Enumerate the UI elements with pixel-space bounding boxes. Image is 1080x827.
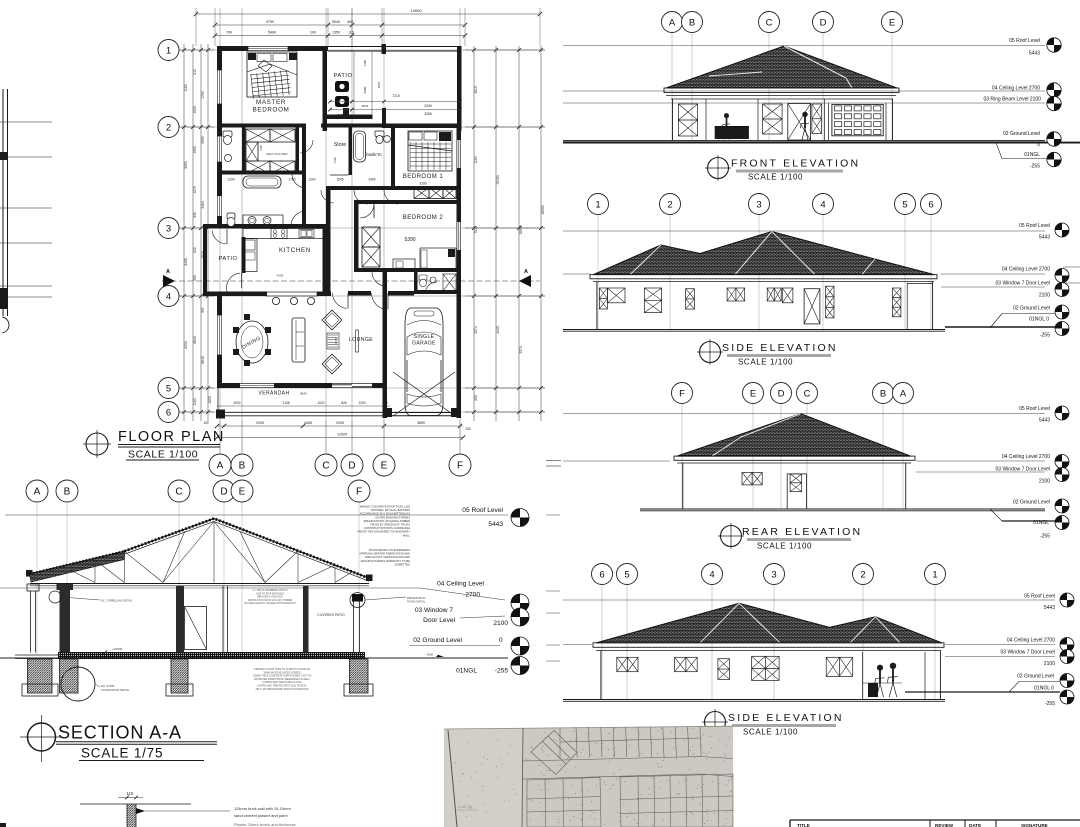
svg-text:MANUFACTURER'S WARRANTY TO BE: MANUFACTURER'S WARRANTY TO BE bbox=[361, 559, 411, 563]
svg-text:TITLE: TITLE bbox=[797, 823, 810, 827]
svg-text:05 Roof Level: 05 Roof Level bbox=[1019, 406, 1050, 412]
svg-text:110: 110 bbox=[348, 31, 354, 35]
svg-text:8434: 8434 bbox=[184, 341, 188, 349]
svg-text:05 Roof Level: 05 Roof Level bbox=[1024, 594, 1055, 600]
svg-text:3280: 3280 bbox=[424, 112, 432, 116]
svg-text:-255: -255 bbox=[1030, 164, 1040, 170]
svg-text:sand cement plaster and paint: sand cement plaster and paint bbox=[234, 813, 288, 818]
svg-text:01NGL 0: 01NGL 0 bbox=[1029, 317, 1049, 323]
svg-text:5003: 5003 bbox=[201, 136, 205, 144]
svg-text:03 Ring Beam Level 2100: 03 Ring Beam Level 2100 bbox=[983, 97, 1041, 103]
svg-text:8405: 8405 bbox=[184, 258, 188, 266]
svg-text:6640: 6640 bbox=[193, 336, 197, 344]
svg-text:1200: 1200 bbox=[358, 401, 365, 405]
svg-text:04 Ceiling Level 2700: 04 Ceiling Level 2700 bbox=[1002, 454, 1050, 460]
svg-text:05 Roof Level: 05 Roof Level bbox=[1019, 223, 1050, 229]
svg-text:02 Ground Level: 02 Ground Level bbox=[1017, 674, 1054, 680]
svg-text:ACCORDANCE 38 X 38 SA BATTENS: ACCORDANCE 38 X 38 SA BATTENS AS bbox=[360, 512, 411, 516]
svg-text:DATE: DATE bbox=[969, 823, 981, 827]
svg-text:115mm brick wall with 15-19mm: 115mm brick wall with 15-19mm bbox=[234, 806, 291, 811]
svg-text:E: E bbox=[750, 388, 756, 399]
svg-text:513: 513 bbox=[193, 69, 197, 75]
svg-text:03 Window 7 Door Level: 03 Window 7 Door Level bbox=[996, 467, 1050, 473]
svg-text:PATIO: PATIO bbox=[333, 73, 352, 79]
svg-text:6: 6 bbox=[599, 569, 604, 580]
svg-text:01NGL: 01NGL bbox=[456, 668, 477, 675]
svg-text:FRONT ELEVATION: FRONT ELEVATION bbox=[731, 158, 860, 170]
svg-text:FOUNDATION DETAIL: FOUNDATION DETAIL bbox=[101, 688, 130, 692]
svg-text:APPROVAL BEFORE FABRICATION AN: APPROVAL BEFORE FABRICATION AND bbox=[359, 552, 410, 556]
svg-text:AS PER MANUFACTURERS: AS PER MANUFACTURERS bbox=[375, 515, 410, 519]
svg-text:1760: 1760 bbox=[288, 178, 295, 182]
svg-text:1850: 1850 bbox=[208, 396, 212, 404]
svg-text:A: A bbox=[524, 269, 528, 275]
svg-text:04 Ceiling Level 2700: 04 Ceiling Level 2700 bbox=[992, 86, 1040, 92]
svg-text:05 Roof Level: 05 Roof Level bbox=[462, 507, 503, 514]
svg-text:1200: 1200 bbox=[227, 178, 234, 182]
svg-text:SCALE 1/100: SCALE 1/100 bbox=[757, 542, 812, 551]
svg-text:3890: 3890 bbox=[417, 421, 425, 425]
svg-text:BEDROOM 2: BEDROOM 2 bbox=[403, 215, 444, 221]
svg-text:2000: 2000 bbox=[233, 401, 240, 405]
svg-text:B: B bbox=[689, 17, 695, 28]
svg-text:12925: 12925 bbox=[337, 433, 347, 437]
svg-text:5443: 5443 bbox=[1039, 235, 1050, 241]
svg-text:COVERED PATIO: COVERED PATIO bbox=[317, 613, 345, 617]
svg-text:F: F bbox=[679, 388, 685, 399]
svg-text:1200: 1200 bbox=[308, 178, 315, 182]
svg-text:5490: 5490 bbox=[268, 31, 276, 35]
svg-text:1200: 1200 bbox=[259, 145, 263, 151]
svg-text:01NGL: 01NGL bbox=[1024, 152, 1040, 158]
svg-text:A: A bbox=[900, 388, 907, 399]
svg-text:5443: 5443 bbox=[1029, 51, 1040, 57]
svg-text:2484: 2484 bbox=[201, 201, 205, 209]
svg-text:826: 826 bbox=[341, 401, 347, 405]
svg-text:150: 150 bbox=[203, 421, 209, 425]
svg-text:05 Roof Level: 05 Roof Level bbox=[1009, 38, 1040, 44]
svg-text:-255: -255 bbox=[1045, 701, 1055, 707]
svg-text:990: 990 bbox=[193, 275, 197, 281]
svg-text:TRUSS BY SPECIALIST. TRUSS: TRUSS BY SPECIALIST. TRUSS bbox=[370, 523, 410, 527]
svg-text:FINISHED, WITH ALL BATTENS: FINISHED, WITH ALL BATTENS bbox=[371, 508, 410, 512]
svg-text:13000: 13000 bbox=[410, 8, 422, 13]
svg-text:02 Ground Level: 02 Ground Level bbox=[1013, 500, 1050, 506]
svg-text:3280: 3280 bbox=[419, 182, 427, 186]
svg-text:1180: 1180 bbox=[363, 59, 367, 66]
svg-text:4200: 4200 bbox=[277, 274, 284, 278]
svg-text:3: 3 bbox=[756, 199, 761, 210]
svg-text:2100: 2100 bbox=[1039, 293, 1050, 299]
svg-text:5003: 5003 bbox=[184, 161, 188, 169]
svg-text:PATIO: PATIO bbox=[218, 256, 237, 262]
svg-text:2945: 2945 bbox=[336, 421, 344, 425]
svg-text:E: E bbox=[381, 461, 388, 472]
svg-text:938: 938 bbox=[193, 212, 197, 218]
svg-text:PROOF TIES ANCHORED TO MASONAR: PROOF TIES ANCHORED TO MASONARY bbox=[357, 530, 410, 534]
svg-text:C: C bbox=[804, 388, 811, 399]
svg-text:150: 150 bbox=[465, 427, 471, 431]
svg-text:5022: 5022 bbox=[362, 104, 369, 108]
svg-text:5443: 5443 bbox=[1044, 605, 1055, 611]
svg-text:Store: Store bbox=[334, 142, 347, 148]
svg-text:SIGNATURE: SIGNATURE bbox=[1021, 823, 1048, 827]
svg-text:E: E bbox=[239, 487, 246, 498]
svg-text:WALL: WALL bbox=[403, 533, 411, 537]
svg-text:3645: 3645 bbox=[334, 337, 338, 344]
svg-text:2: 2 bbox=[860, 569, 865, 580]
svg-text:5390: 5390 bbox=[404, 237, 415, 243]
svg-text:4: 4 bbox=[166, 291, 171, 302]
svg-text:04 Ceiling Level: 04 Ceiling Level bbox=[437, 581, 484, 588]
svg-text:+16000: +16000 bbox=[112, 647, 122, 651]
svg-text:1162: 1162 bbox=[184, 84, 188, 91]
svg-text:2700: 2700 bbox=[465, 592, 480, 599]
svg-text:Plaster 20mm levels and thickn: Plaster 20mm levels and thickness bbox=[234, 822, 296, 827]
svg-text:4465: 4465 bbox=[304, 421, 312, 425]
svg-text:04 Ceiling Level 2700: 04 Ceiling Level 2700 bbox=[1002, 267, 1050, 273]
svg-text:900: 900 bbox=[474, 395, 478, 401]
svg-text:SPECIFICATION. DIAGONAL TIMBER: SPECIFICATION. DIAGONAL TIMBER bbox=[363, 519, 410, 523]
svg-text:5: 5 bbox=[902, 199, 907, 210]
svg-text:HOUSED LENGTH. PACKED WITH MAR: HOUSED LENGTH. PACKED WITH MARGUITZ bbox=[244, 602, 296, 605]
svg-text:1: 1 bbox=[595, 199, 600, 210]
svg-text:WALK IN CLOSET: WALK IN CLOSET bbox=[266, 152, 288, 156]
svg-text:D: D bbox=[820, 17, 827, 28]
svg-text:4: 4 bbox=[820, 199, 825, 210]
svg-text:04 Ceiling Level 2700: 04 Ceiling Level 2700 bbox=[1007, 638, 1055, 644]
svg-text:-255: -255 bbox=[495, 668, 509, 675]
svg-text:5: 5 bbox=[166, 383, 171, 394]
svg-text:A: A bbox=[34, 487, 41, 498]
svg-text:FIXING DETAIL: FIXING DETAIL bbox=[407, 600, 426, 604]
svg-text:02 Ground Level: 02 Ground Level bbox=[1013, 306, 1050, 312]
svg-text:5900: 5900 bbox=[363, 86, 367, 93]
svg-text:1163: 1163 bbox=[474, 156, 478, 163]
svg-text:MASTER: MASTER bbox=[256, 99, 286, 106]
svg-text:03 Window 7 Door Level: 03 Window 7 Door Level bbox=[1001, 650, 1055, 656]
svg-text:5443: 5443 bbox=[488, 521, 503, 528]
svg-text:4510: 4510 bbox=[377, 81, 381, 88]
svg-text:SCALE 1/100: SCALE 1/100 bbox=[738, 358, 793, 367]
svg-text:5040: 5040 bbox=[332, 20, 340, 24]
svg-text:115: 115 bbox=[127, 791, 134, 796]
svg-text:1: 1 bbox=[166, 45, 171, 56]
svg-text:C-447 (3): C-447 (3) bbox=[458, 805, 471, 809]
svg-text:D: D bbox=[220, 487, 227, 498]
svg-text:BEDROOM 1: BEDROOM 1 bbox=[403, 174, 444, 180]
svg-text:C: C bbox=[766, 17, 773, 28]
svg-text:03 Window 7 Door Level: 03 Window 7 Door Level bbox=[996, 281, 1050, 287]
svg-text:B: B bbox=[64, 487, 71, 498]
svg-text:1545: 1545 bbox=[337, 113, 344, 117]
svg-text:6: 6 bbox=[166, 407, 171, 418]
svg-text:957: 957 bbox=[201, 307, 205, 313]
svg-text:E: E bbox=[889, 17, 895, 28]
svg-text:A: A bbox=[217, 461, 224, 472]
svg-text:SCALE 1/100: SCALE 1/100 bbox=[748, 173, 803, 182]
svg-text:MARLEY CONCRETE ROOF TILES LAI: MARLEY CONCRETE ROOF TILES LAID bbox=[360, 505, 410, 509]
svg-text:FLOOR PLAN: FLOOR PLAN bbox=[118, 429, 225, 445]
svg-text:7910: 7910 bbox=[474, 226, 478, 234]
svg-text:BEDROOM: BEDROOM bbox=[253, 107, 290, 114]
svg-text:100: 100 bbox=[310, 31, 316, 35]
svg-text:02 Ground Level: 02 Ground Level bbox=[1003, 131, 1040, 137]
svg-text:0: 0 bbox=[499, 637, 503, 644]
svg-text:1190: 1190 bbox=[333, 157, 337, 163]
svg-text:19100: 19100 bbox=[496, 175, 500, 184]
svg-text:-255: -255 bbox=[1040, 534, 1050, 540]
svg-text:2400: 2400 bbox=[368, 178, 375, 182]
svg-text:SUBMITTED: SUBMITTED bbox=[394, 562, 410, 566]
svg-text:LOUNGE: LOUNGE bbox=[349, 337, 373, 343]
svg-text:3: 3 bbox=[771, 569, 776, 580]
svg-text:SCALE 1/75: SCALE 1/75 bbox=[81, 746, 163, 761]
svg-text:VERANDAH: VERANDAH bbox=[259, 391, 290, 397]
svg-text:GARAGE: GARAGE bbox=[412, 341, 436, 347]
svg-text:1925: 1925 bbox=[193, 106, 197, 114]
svg-text:C: C bbox=[322, 461, 329, 472]
svg-text:D: D bbox=[778, 388, 785, 399]
svg-text:2100: 2100 bbox=[1039, 479, 1050, 485]
svg-text:B: B bbox=[880, 388, 886, 399]
svg-text:02 Ground Level: 02 Ground Level bbox=[413, 637, 462, 644]
svg-text:4440: 4440 bbox=[496, 326, 500, 334]
svg-text:B: B bbox=[239, 461, 246, 472]
svg-text:SINGLE: SINGLE bbox=[414, 334, 435, 340]
svg-text:2274: 2274 bbox=[519, 346, 523, 354]
svg-text:CONSTRUCTION WITH HURRICANE: CONSTRUCTION WITH HURRICANE bbox=[364, 526, 410, 530]
svg-text:4: 4 bbox=[709, 569, 714, 580]
svg-text:SECTION A-A: SECTION A-A bbox=[58, 723, 182, 743]
svg-text:bathr'm: bathr'm bbox=[366, 152, 381, 157]
svg-text:2138: 2138 bbox=[282, 401, 289, 405]
svg-text:0: 0 bbox=[1037, 142, 1040, 148]
svg-text:F: F bbox=[457, 461, 463, 472]
svg-text:TRUSS DESIGN TO ENGINEER'S: TRUSS DESIGN TO ENGINEER'S bbox=[368, 548, 410, 552]
svg-text:7210: 7210 bbox=[392, 94, 400, 98]
svg-text:03 Window 7: 03 Window 7 bbox=[415, 607, 453, 614]
svg-text:2100: 2100 bbox=[493, 620, 508, 627]
svg-text:SIDE ELEVATION: SIDE ELEVATION bbox=[728, 712, 844, 724]
svg-text:Door Level: Door Level bbox=[423, 617, 455, 624]
svg-text:8640: 8640 bbox=[300, 392, 307, 396]
svg-text:18930: 18930 bbox=[519, 225, 523, 234]
svg-text:EX. CORBELLING DETAIL: EX. CORBELLING DETAIL bbox=[101, 599, 133, 603]
svg-text:4510: 4510 bbox=[474, 86, 478, 94]
svg-text:A: A bbox=[166, 269, 170, 275]
svg-text:822: 822 bbox=[193, 247, 197, 253]
svg-text:RIDGE/PURLIN: RIDGE/PURLIN bbox=[407, 596, 426, 600]
svg-text:1022: 1022 bbox=[317, 401, 324, 405]
svg-text:2: 2 bbox=[667, 199, 672, 210]
svg-text:1270: 1270 bbox=[193, 186, 197, 194]
svg-text:1770: 1770 bbox=[341, 104, 348, 108]
svg-text:2274: 2274 bbox=[474, 326, 478, 334]
svg-text:6640: 6640 bbox=[201, 356, 205, 364]
svg-text:REVIEW: REVIEW bbox=[935, 823, 954, 827]
svg-text:REAR ELEVATION: REAR ELEVATION bbox=[742, 526, 862, 538]
svg-text:18930: 18930 bbox=[541, 205, 545, 214]
svg-text:1545: 1545 bbox=[336, 178, 343, 182]
svg-text:SIDE ELEVATION: SIDE ELEVATION bbox=[722, 342, 838, 354]
svg-text:1350: 1350 bbox=[332, 31, 340, 35]
svg-text:350 X 350 REINFORCED STRIP FOU: 350 X 350 REINFORCED STRIP FOUNDATIONS bbox=[256, 688, 309, 691]
svg-text:3: 3 bbox=[166, 223, 171, 234]
svg-text:2: 2 bbox=[166, 122, 171, 133]
svg-text:5443: 5443 bbox=[1039, 418, 1050, 424]
svg-text:2945: 2945 bbox=[256, 421, 264, 425]
svg-text:KITCHEN: KITCHEN bbox=[279, 247, 311, 254]
svg-text:1762: 1762 bbox=[201, 91, 205, 99]
svg-text:2340: 2340 bbox=[424, 104, 432, 108]
svg-text:1180: 1180 bbox=[193, 398, 197, 405]
svg-text:A: A bbox=[669, 17, 676, 28]
svg-text:6: 6 bbox=[928, 199, 933, 210]
svg-text:01NGL 0: 01NGL 0 bbox=[1034, 686, 1054, 692]
svg-text:SPECIALISTS' CERTIFICATION AN: SPECIALISTS' CERTIFICATION AND bbox=[365, 555, 410, 559]
svg-text:C: C bbox=[175, 487, 182, 498]
svg-text:2100: 2100 bbox=[1044, 661, 1055, 667]
svg-text:1: 1 bbox=[932, 569, 937, 580]
svg-text:F: F bbox=[356, 487, 362, 498]
svg-text:SCALE 1/100: SCALE 1/100 bbox=[128, 449, 198, 461]
svg-text:700: 700 bbox=[226, 31, 232, 35]
svg-text:D: D bbox=[348, 461, 355, 472]
svg-text:4200: 4200 bbox=[427, 653, 434, 657]
svg-text:-255: -255 bbox=[1040, 333, 1050, 339]
svg-text:1003: 1003 bbox=[193, 146, 197, 154]
svg-text:3790: 3790 bbox=[266, 20, 274, 24]
svg-text:5: 5 bbox=[624, 569, 629, 580]
svg-text:SCALE 1/100: SCALE 1/100 bbox=[743, 728, 798, 737]
